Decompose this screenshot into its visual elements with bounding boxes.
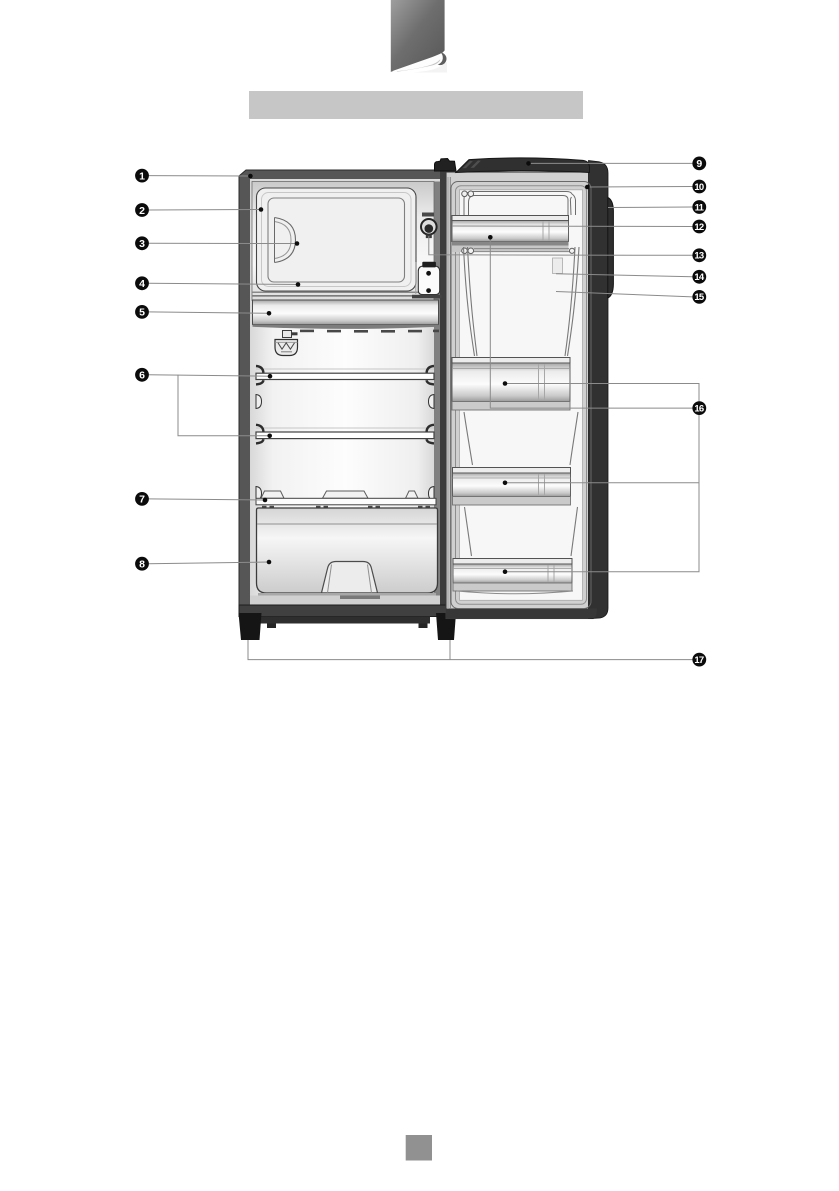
svg-text:1: 1 xyxy=(139,170,145,182)
svg-text:17: 17 xyxy=(694,655,703,666)
svg-text:14: 14 xyxy=(694,272,704,283)
svg-text:13: 13 xyxy=(694,251,703,262)
svg-text:15: 15 xyxy=(694,292,704,303)
svg-text:9: 9 xyxy=(696,158,702,170)
svg-text:3: 3 xyxy=(139,238,145,250)
svg-text:11: 11 xyxy=(695,202,705,213)
svg-text:12: 12 xyxy=(694,222,703,233)
svg-text:4: 4 xyxy=(139,278,145,290)
svg-text:6: 6 xyxy=(139,370,145,382)
svg-text:8: 8 xyxy=(139,559,145,571)
svg-text:2: 2 xyxy=(139,205,145,217)
svg-text:7: 7 xyxy=(139,494,145,506)
svg-text:10: 10 xyxy=(694,182,703,193)
svg-text:5: 5 xyxy=(139,307,145,319)
svg-text:16: 16 xyxy=(694,403,703,414)
